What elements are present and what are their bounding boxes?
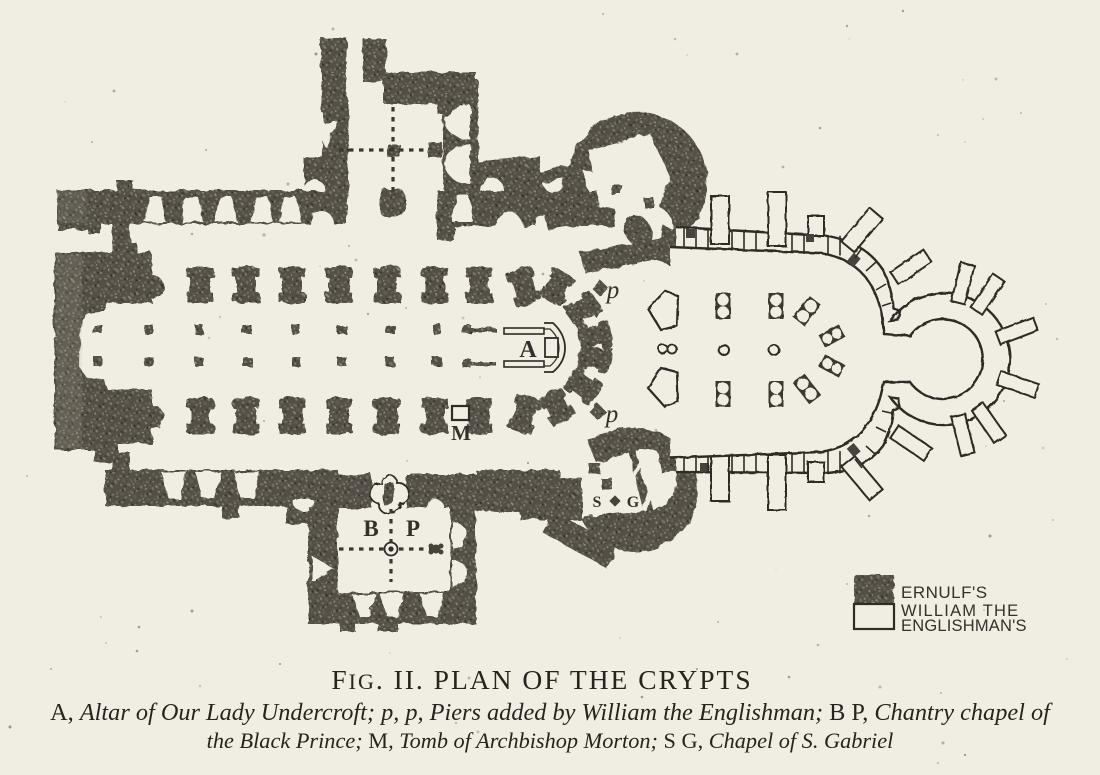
svg-text:the Black Prince; M, Tomb of A: the Black Prince; M, Tomb of Archbishop … xyxy=(207,728,894,753)
svg-text:FIG. II. PLAN OF THE CRYPTS: FIG. II. PLAN OF THE CRYPTS xyxy=(331,664,752,695)
svg-text:ERNULF'S: ERNULF'S xyxy=(901,583,988,602)
svg-text:p: p xyxy=(604,401,619,428)
svg-text:G: G xyxy=(627,494,640,511)
svg-text:A: A xyxy=(519,337,537,363)
svg-text:S: S xyxy=(593,494,602,511)
svg-text:M: M xyxy=(451,421,471,445)
svg-text:A, Altar of Our Lady Undercrof: A, Altar of Our Lady Undercroft; p, p, P… xyxy=(50,699,1053,726)
svg-text:ENGLISHMAN'S: ENGLISHMAN'S xyxy=(901,617,1027,635)
svg-text:p: p xyxy=(605,277,620,304)
svg-text:P: P xyxy=(406,516,420,541)
svg-text:B: B xyxy=(363,516,378,541)
